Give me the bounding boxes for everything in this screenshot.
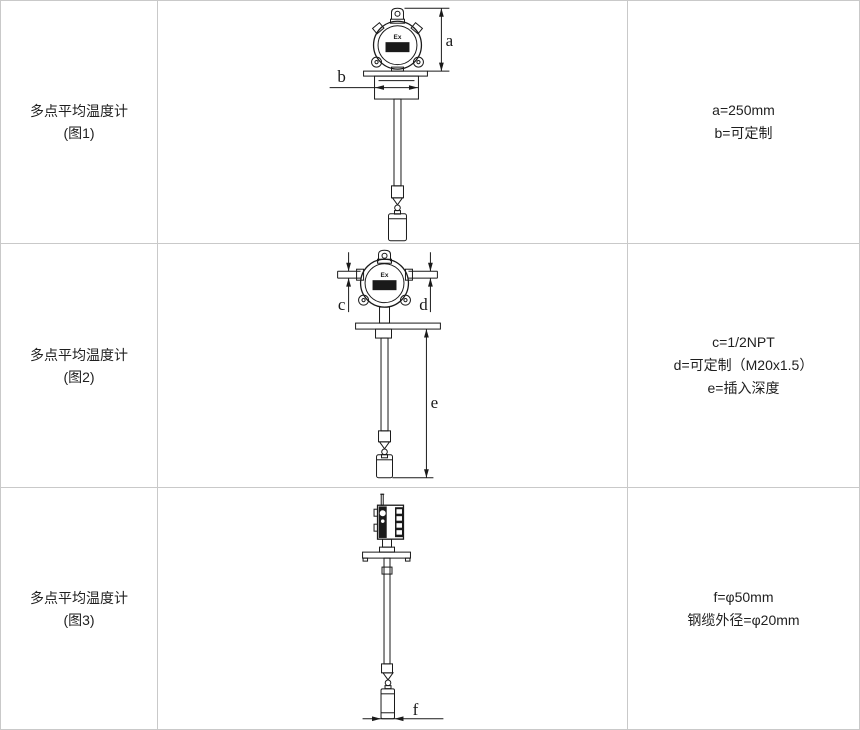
dim-label-b: b [337,67,345,86]
figure1-title-cell: 多点平均温度计 (图1) [1,1,158,244]
display-window [386,42,410,52]
dim-b-arrow-right [409,85,418,90]
thermometer-figure-2-drawing: Ex c d [158,244,627,487]
cable-ring [395,205,401,211]
neck [380,307,390,323]
terminal-slot [396,523,401,527]
product-spec-table: 多点平均温度计 (图1) Ex [0,0,860,730]
coupling [392,186,404,198]
dim-c-arrow-down [346,263,351,271]
thermometer-figure-3-drawing: f [158,488,627,729]
spec-line: e=插入深度 [708,377,780,400]
head-ear-hole-right [417,61,420,64]
flange-collar [382,567,392,574]
spec-line: a=250mm [712,99,775,122]
flange-tab-left [363,558,367,561]
neck [383,539,392,547]
display-window [373,280,397,290]
dim-a-arrow-up [439,8,444,16]
head-lug-top-right [411,23,422,34]
antenna [381,494,383,505]
figure-number: (图3) [63,609,94,631]
ex-mark: Ex [394,34,402,41]
dim-d-arrow-up [428,278,433,286]
figure2-drawing-cell: Ex c d [158,244,628,488]
flange-collar [376,329,392,338]
flange-plate [364,71,428,76]
product-name: 多点平均温度计 [30,100,128,122]
terminal-slot [396,530,401,534]
product-name: 多点平均温度计 [30,344,128,366]
head-ear-hole-left [362,299,365,302]
body-led [381,519,385,523]
dim-label-c: c [338,295,346,314]
dim-c-arrow-up [346,278,351,286]
figure3-specs-cell: f=φ50mm 钢缆外径=φ20mm [628,488,859,729]
dim-label-d: d [419,295,428,314]
flange-tab-right [405,558,409,561]
dim-d-arrow-down [428,263,433,271]
terminal-slot [396,509,401,513]
dim-e-arrow-up [424,329,429,337]
protection-tube [394,99,401,186]
terminal-slot [396,516,401,520]
head-lug-top-left [373,23,384,34]
cable-link [380,442,390,449]
lifting-eye [392,8,404,19]
spec-line: d=可定制（M20x1.5） [674,354,814,377]
figure3-drawing-cell: f [158,488,628,729]
neck-base [380,547,395,552]
dim-label-e: e [431,393,439,412]
figure-number: (图2) [63,366,94,388]
figure-number: (图1) [63,122,94,144]
coupling [379,431,391,442]
cable-ring [385,680,391,686]
spec-line: f=φ50mm [713,586,773,609]
head-ear-hole-left [375,61,378,64]
eye-hole [382,253,387,258]
figure1-drawing-cell: Ex a [158,1,628,244]
spec-line: 钢缆外径=φ20mm [687,609,799,632]
cable-link [383,673,393,680]
spec-line: c=1/2NPT [712,331,775,354]
dim-e-arrow-down [424,469,429,477]
product-name: 多点平均温度计 [30,587,128,609]
eye-hole [395,11,400,16]
ex-mark: Ex [381,272,389,279]
dim-label-f: f [413,700,419,719]
cable-link [393,198,403,205]
body-window-circle [380,510,386,516]
flange-plate [363,552,411,558]
flange-plate [356,323,441,329]
spec-line: b=可定制 [715,122,773,145]
weight-nub [385,686,391,689]
dim-b-arrow-left [375,85,384,90]
cable-ring [382,449,388,455]
protection-tube [381,338,388,431]
bottom-weight [389,214,407,241]
dim-label-a: a [446,31,454,50]
figure2-specs-cell: c=1/2NPT d=可定制（M20x1.5） e=插入深度 [628,244,859,488]
thermometer-figure-1-drawing: Ex a [158,1,627,243]
figure1-specs-cell: a=250mm b=可定制 [628,1,859,244]
dim-f-arrow-right [372,716,381,721]
coupling [382,664,393,673]
figure2-title-cell: 多点平均温度计 (图2) [1,244,158,488]
head-ear-hole-right [404,299,407,302]
spec-grid: 多点平均温度计 (图1) Ex [1,1,859,729]
dim-f-arrow-left [394,716,403,721]
figure3-title-cell: 多点平均温度计 (图3) [1,488,158,729]
dim-a-arrow-down [439,63,444,71]
